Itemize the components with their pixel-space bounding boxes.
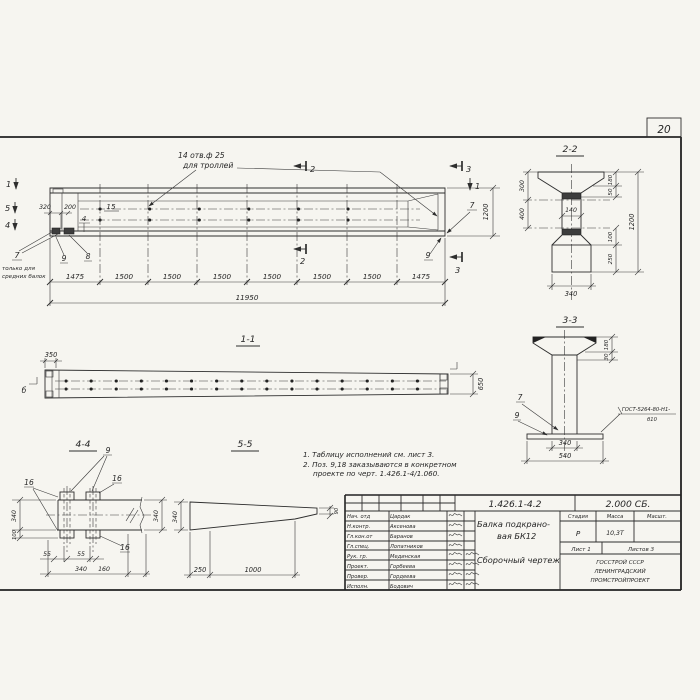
section-5-5-title: 5-5 [237,439,252,450]
dim-400: 400 [519,208,526,220]
pos-9-s44: 9 [106,446,111,455]
dim-100-s44: 100 [12,529,18,540]
signature-mark [449,524,462,526]
dim-55-a: 55 [43,551,51,558]
dim-350: 350 [45,351,58,359]
chain-dim: 1475 [412,272,431,281]
note-line-3: проекте по черт. 1.426.1-4/1.060. [313,469,440,478]
staff-role: Н.контр. [347,524,370,530]
dim-340-s22: 340 [565,290,578,298]
foot-note-1: только для [2,266,36,272]
dim-50: 50 [608,188,614,196]
staff-role: Рук. гр. [347,554,367,560]
signature-mark [449,553,462,555]
dim-100-s22: 100 [608,231,614,242]
drawing-sheet: 20 14 отв.ф 25 для троллей 1 5 4 320 [0,0,700,700]
staff-role: Исполн. [347,584,369,590]
org-line-2: ЛЕНИНГРАДСКИЙ [593,568,646,575]
signature-mark [449,544,462,546]
pos-7-s33: 7 [518,393,523,402]
cut-5-label: 5 [5,203,10,213]
drawing-title-1: Балка подкрано- [477,519,550,529]
dim-250: 250 [194,566,207,574]
bearing-block-9 [52,228,60,234]
cut-1-label: 1 [6,179,11,189]
dim-340-s44-right: 340 [153,510,160,522]
dim-1200-s22: 1200 [628,214,636,231]
s55-taper-plate [190,502,317,530]
pos-16-top: 16 [112,474,122,483]
drawing-canvas: 20 14 отв.ф 25 для троллей 1 5 4 320 [0,0,700,700]
pos-9-left: 9 [62,254,67,263]
dimension-chain: 1475 1500 1500 1500 1500 1500 1500 1475 … [47,238,448,306]
dim-340-s33: 340 [559,439,572,447]
right-end-labels: 7 9 1200 [424,185,500,260]
pos-16-left: 16 [24,478,34,487]
dim-180-s33: 180 [604,339,610,350]
dim-55-b: 55 [77,551,85,558]
pos-8: 8 [86,252,91,261]
s22-top-flange [538,172,604,193]
chain-dim: 1500 [163,272,182,281]
trolley-holes [100,209,397,220]
weld-note: ГОСТ-5264-80-Н1- б10 [601,407,676,432]
section-3-3: 3-3 180 30 7 9 ГОСТ-5264-80-Н1- б10 340 … [513,315,676,464]
dim-250-s22: 250 [608,253,614,264]
signature-mark [449,534,462,536]
cut-markers-2-3: 2 2 3 3 1 [294,161,480,275]
signature-mark [449,573,462,575]
dim-340-s44-bottom: 340 [75,566,87,573]
dim-200: 200 [64,204,76,211]
staff-name: Бодович [390,584,413,590]
staff-role: Провер. [347,574,369,580]
stage-value: Р [576,529,581,538]
section-3-3-title: 3-3 [562,315,577,326]
mass-header: Масса [607,514,624,520]
s22-joint-upper [562,193,581,199]
dim-540: 540 [559,452,572,460]
sheets-label: Листов 3 [627,547,655,553]
cut-3-top: 3 [466,164,471,174]
staff-rows: Нач. отд Цардак Н.контр. Аксенова Гл.кон… [347,514,479,590]
dim-340-s55: 340 [172,511,179,523]
weld-gost: ГОСТ-5264-80-Н1- [622,407,670,413]
date-mark [466,573,479,575]
sheet-label: Лист 1 [570,547,591,553]
dim-140: 140 [565,207,577,214]
mass-value: 10,3Т [606,530,625,537]
signature-mark [449,563,462,565]
plan-holes [66,381,441,389]
pos-7-right: 7 [470,201,475,210]
s22-joint-lower [562,229,581,235]
signature-mark [449,583,462,585]
end-dims: 320 200 15 4 [39,202,119,232]
staff-name: Аксенова [389,524,416,530]
section-2-2-title: 2-2 [562,144,577,155]
main-elevation-view: 14 отв.ф 25 для троллей 1 5 4 320 200 15… [2,151,500,306]
staff-name: Горбеева [390,564,415,570]
dim-total: 11950 [236,293,259,302]
section-4-4-title: 4-4 [75,439,90,450]
cut-4-label: 4 [5,220,10,230]
cut-2-bottom: 2 [300,256,305,266]
date-mark [466,583,479,585]
dim-180-s22: 180 [608,174,614,185]
hole-note: 14 отв.ф 25 для троллей [149,151,437,216]
cut-1-right: 1 [475,181,480,191]
s33-pad-right [583,337,596,343]
pos-9-s33: 9 [515,411,520,420]
signature-mark [449,514,462,516]
org-line-3: ПРОМСТРОЙПРОЕКТ [591,577,651,584]
dim-340-s44-left: 340 [11,510,18,522]
stage-header: Стадия [568,514,588,520]
staff-name: Баранов [390,534,413,540]
chain-dim: 1500 [313,272,332,281]
drawing-title-3: Сборочный чертеж [477,555,560,565]
beam-outline [50,188,445,236]
cut-3-bottom: 3 [455,265,460,275]
view-b-marker: б [22,386,27,395]
dim-320: 320 [39,204,51,211]
beam-web-recess [62,193,438,231]
chain-dim: 1500 [263,272,282,281]
chain-dim: 1500 [363,272,382,281]
chain-dim: 1475 [66,272,85,281]
bearing-block-8 [64,228,74,234]
note-line-2: 2. Поз. 9,18 заказываются в конкретном [303,460,457,469]
gridlines [100,184,397,285]
chain-dim: 1500 [213,272,232,281]
hole-centerlines [80,209,420,220]
dim-650: 650 [477,378,485,391]
dim-160: 160 [98,566,110,573]
org-line-1: ГОССТРОЙ СССР [596,559,644,566]
scale-header: Масшт. [647,514,667,520]
doc-series: 2.000 СБ. [606,499,651,510]
s33-pad-left [533,337,546,343]
staff-role: Гл.кон.от [347,534,373,540]
staff-name: Гордеева [390,574,416,580]
dim-1200-main: 1200 [482,204,490,221]
dim-90: 90 [334,507,340,514]
staff-role: Гл.спец. [347,544,369,550]
title-block: 1.426.1-4.2 2.000 СБ. Нач. отд Цардак Н.… [345,495,681,590]
staff-role: Проект. [347,564,368,570]
foot-note-2: средних балок [2,274,46,280]
section-1-1-title: 1-1 [240,334,255,345]
dim-1000: 1000 [245,566,262,574]
pos-16-bottom: 16 [120,543,130,552]
s44-bolt-lines [64,488,96,544]
sheet-number: 20 [657,124,671,136]
cut-markers-left: 1 5 4 [5,178,16,230]
drawing-title-2: вая БК12 [497,531,536,541]
staff-role: Нач. отд [347,514,371,520]
end-plate-top [53,189,63,193]
note-line-1: 1. Таблицу исполнений см. лист 3. [303,450,434,459]
staff-name: Мединская [390,554,420,560]
chain-dim: 1500 [115,272,134,281]
pos-7-left: 7 [14,250,20,260]
hole-note-line2: для троллей [182,161,233,170]
pos-4: 4 [82,214,87,223]
cut-2-top: 2 [310,164,315,174]
pos-9-right: 9 [426,251,431,260]
dim-30: 30 [604,353,610,361]
pos-15: 15 [106,202,116,211]
staff-name: Цардак [390,514,411,520]
doc-number: 1.426.1-4.2 [489,499,542,510]
dim-300: 300 [519,180,526,192]
notes: 1. Таблицу исполнений см. лист 3. 2. Поз… [303,450,457,478]
staff-name: Лопатников [389,544,423,550]
hole-note-line1: 14 отв.ф 25 [178,151,225,160]
section-4-4: 4-4 9 16 16 16 340 100 55 55 340 160 340 [11,439,167,577]
weld-size: б10 [647,417,657,423]
section-1-1: 1-1 350 650 б [22,334,485,398]
section-2-2: 2-2 140 300 400 180 50 100 250 1200 340 [519,144,644,300]
